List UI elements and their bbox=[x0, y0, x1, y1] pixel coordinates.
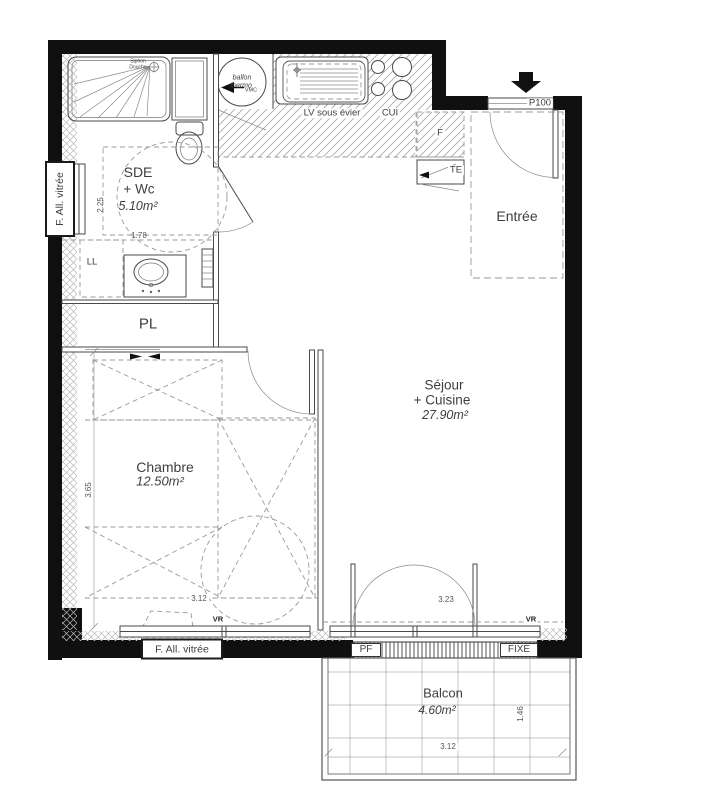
label-entry-door: P100 bbox=[527, 98, 553, 108]
bathroom-wall bbox=[214, 54, 219, 167]
bedroom-door-swing bbox=[248, 351, 311, 414]
kitchen-sink bbox=[276, 57, 368, 104]
washer-area bbox=[80, 240, 123, 297]
room-label-sde: SDE bbox=[124, 165, 153, 179]
french-doors bbox=[351, 564, 477, 626]
bedroom-furniture bbox=[85, 360, 318, 624]
dim-balcon-width: 3.12 bbox=[438, 743, 458, 751]
room-label-sejour: Séjour bbox=[424, 378, 463, 392]
living-window bbox=[330, 626, 540, 637]
entry-door-leaf bbox=[553, 110, 558, 178]
label-dishwasher: LV sous évier bbox=[302, 108, 363, 118]
bedroom-window bbox=[120, 626, 310, 637]
label-vr-right: VR bbox=[524, 615, 538, 623]
dim-chambre-width: 3.12 bbox=[189, 595, 209, 603]
room-label-sde-2: + Wc bbox=[123, 182, 154, 196]
bedroom-door-leaf bbox=[310, 350, 315, 414]
dim-balcon-height: 1.46 bbox=[517, 706, 525, 722]
shower-drain-icon bbox=[149, 62, 160, 73]
room-area-chambre: 12.50m² bbox=[136, 475, 184, 488]
radiator bbox=[202, 249, 213, 287]
label-cooktop: CUI bbox=[380, 108, 400, 118]
washbasin bbox=[124, 255, 186, 297]
label-vmc: VMC bbox=[245, 88, 257, 94]
dim-sde-width: 1.78 bbox=[131, 232, 147, 240]
room-label-entree: Entrée bbox=[496, 209, 537, 223]
room-label-pl: PL bbox=[139, 317, 157, 332]
label-vr-left: VR bbox=[213, 615, 223, 623]
label-electrical-panel: TE bbox=[448, 165, 464, 175]
shower-tray bbox=[68, 57, 170, 121]
room-area-sde: 5.10m² bbox=[119, 200, 158, 213]
slide-arrow-left-icon bbox=[148, 354, 160, 360]
label-porte-fenetre: PF bbox=[351, 643, 381, 657]
bedroom bbox=[85, 348, 323, 631]
floor-plan: SDE + Wc 5.10m² 2.25 1.78 LL PL Chambre … bbox=[0, 0, 705, 800]
entry-arrow-icon bbox=[511, 72, 541, 93]
bedroom-partition bbox=[318, 350, 323, 630]
label-window-bottom: F. All. vitrée bbox=[155, 643, 209, 655]
label-siphon-2: Douche bbox=[129, 66, 146, 71]
dim-sejour-door: 3.23 bbox=[438, 596, 454, 604]
room-label-balcon: Balcon bbox=[423, 687, 463, 700]
room-area-balcon: 4.60m² bbox=[418, 704, 455, 716]
entry-zone bbox=[471, 112, 563, 278]
balcony bbox=[322, 658, 576, 780]
label-ballon-1: ballon bbox=[233, 75, 252, 82]
room-area-sejour: 27.90m² bbox=[422, 409, 468, 422]
dim-chambre-height: 3.65 bbox=[85, 482, 93, 498]
room-label-chambre: Chambre bbox=[136, 460, 194, 474]
plan-linework bbox=[0, 0, 705, 800]
bathroom-cabinet bbox=[172, 58, 207, 120]
room-label-sejour-2: + Cuisine bbox=[414, 393, 471, 407]
bottom-window-label-box: F. All. vitrée bbox=[141, 639, 223, 660]
label-window-left: F. All. vitrée bbox=[54, 172, 66, 226]
slide-arrow-right-icon bbox=[130, 354, 142, 360]
entry-door-swing bbox=[490, 112, 556, 178]
label-fixe: FIXE bbox=[500, 643, 538, 657]
left-window-label-box: F. All. vitrée bbox=[45, 161, 75, 237]
label-fridge: F bbox=[435, 128, 445, 138]
label-washer: LL bbox=[87, 257, 98, 267]
dim-sde-height: 2.25 bbox=[97, 197, 105, 213]
bathroom-door bbox=[219, 167, 253, 232]
